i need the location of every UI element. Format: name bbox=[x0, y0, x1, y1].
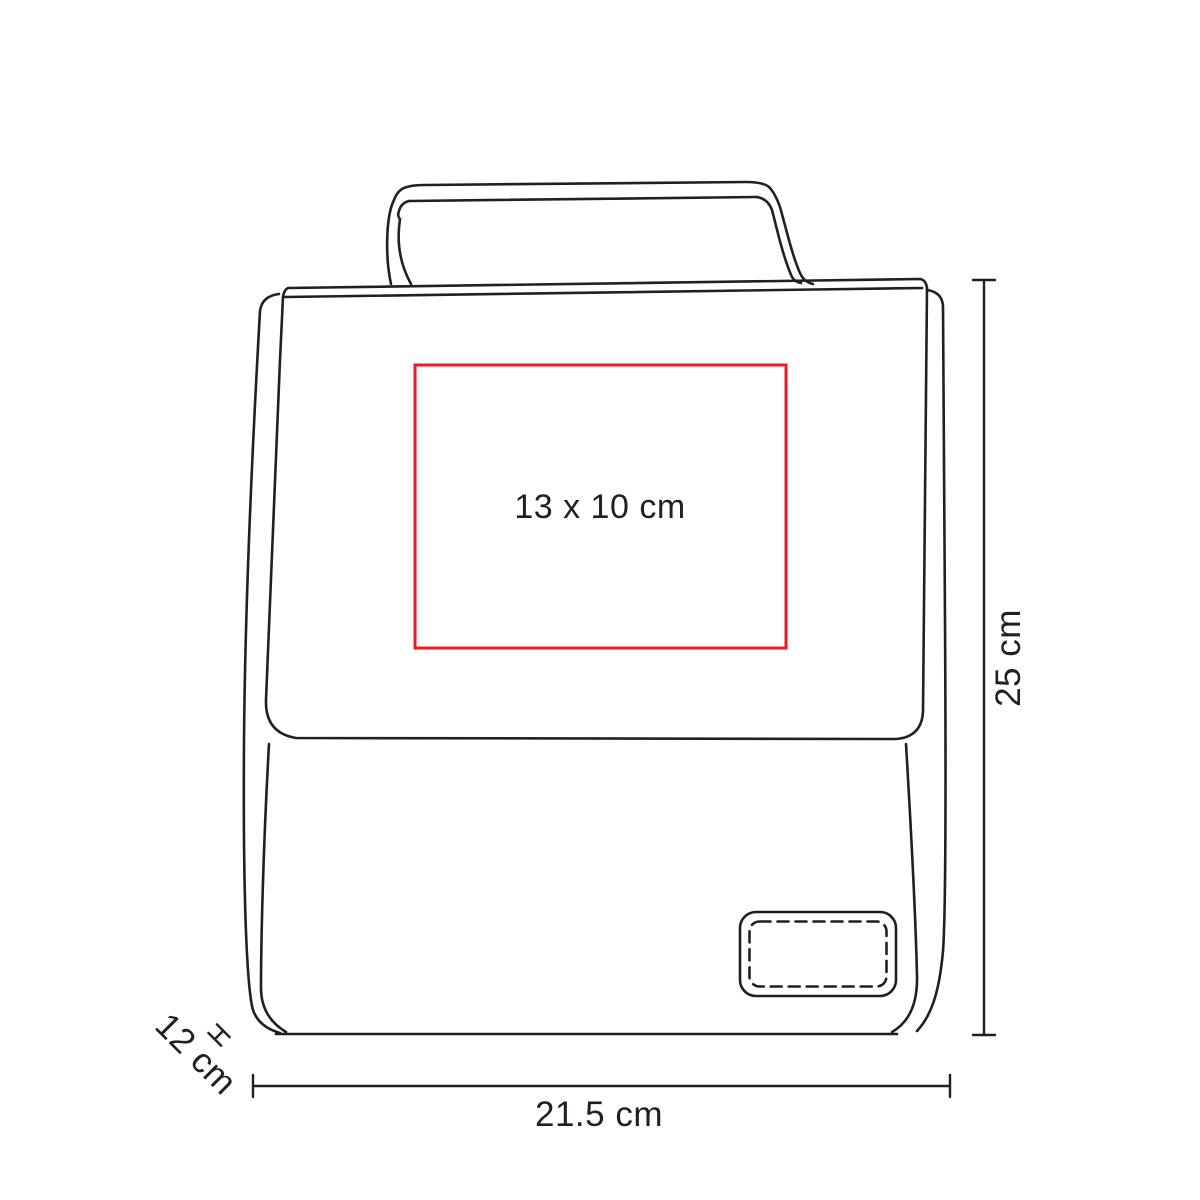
lunch-bag-diagram-canvas: 13 x 10 cm 25 cm bbox=[0, 0, 1200, 1200]
imprint-area: 13 x 10 cm bbox=[415, 365, 786, 648]
handle-right-fold bbox=[757, 197, 801, 283]
width-dimension bbox=[253, 1075, 950, 1097]
height-dimension-label: 25 cm bbox=[989, 609, 1028, 707]
bag-handle bbox=[387, 182, 813, 284]
body-right-edge bbox=[892, 744, 917, 1032]
dimension-annotations bbox=[208, 280, 995, 1097]
imprint-size-label: 13 x 10 cm bbox=[514, 488, 685, 526]
depth-dimension-label: 12 cm bbox=[148, 1006, 245, 1103]
handle-inner-edge bbox=[409, 197, 757, 201]
flap-top-seam bbox=[285, 288, 922, 297]
bag-body bbox=[261, 744, 917, 1034]
bag-line-drawing bbox=[244, 182, 946, 1034]
width-dimension-label: 21.5 cm bbox=[535, 1095, 663, 1134]
product-dimension-diagram: 13 x 10 cm 25 cm bbox=[0, 0, 1200, 1200]
handle-left-fold bbox=[398, 201, 409, 219]
depth-dim-line bbox=[215, 1031, 223, 1039]
handle-left-fold-lower bbox=[399, 219, 411, 284]
shell-right-edge bbox=[917, 290, 946, 1031]
label-patch-stitching bbox=[750, 922, 887, 987]
body-left-edge bbox=[261, 744, 286, 1032]
label-patch bbox=[740, 912, 896, 996]
label-patch-outline bbox=[740, 912, 896, 996]
